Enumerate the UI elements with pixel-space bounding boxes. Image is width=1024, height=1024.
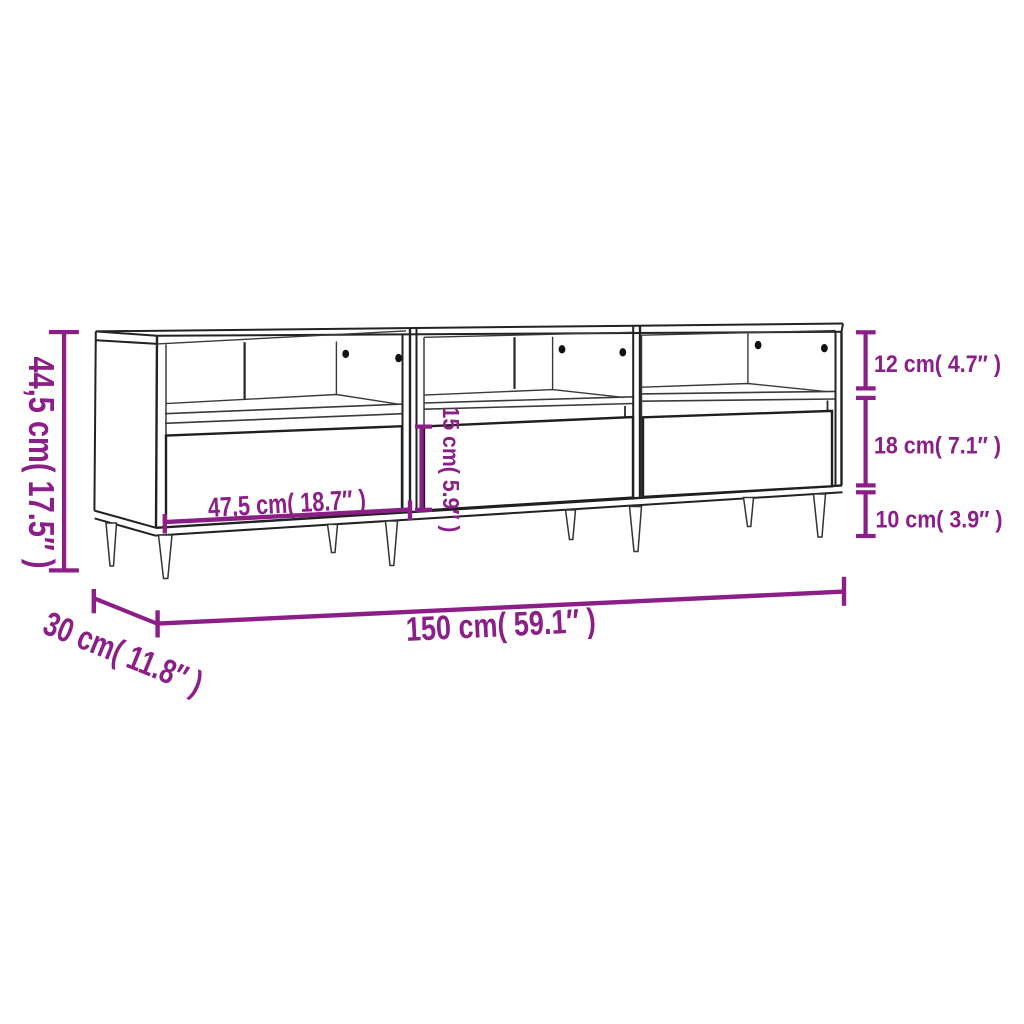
svg-text:18 cm( 7.1″ ): 18 cm( 7.1″ ) [874,433,1001,460]
svg-text:30 cm( 11.8″ ): 30 cm( 11.8″ ) [38,605,208,703]
svg-text:150 cm( 59.1″ ): 150 cm( 59.1″ ) [405,602,597,649]
svg-text:10 cm( 3.9″ ): 10 cm( 3.9″ ) [876,507,1003,534]
svg-text:44,5 cm( 17.5″ ): 44,5 cm( 17.5″ ) [21,357,62,569]
svg-text:15 cm( 5.9″ ): 15 cm( 5.9″ ) [438,407,464,533]
svg-text:12 cm( 4.7″ ): 12 cm( 4.7″ ) [874,351,1001,378]
